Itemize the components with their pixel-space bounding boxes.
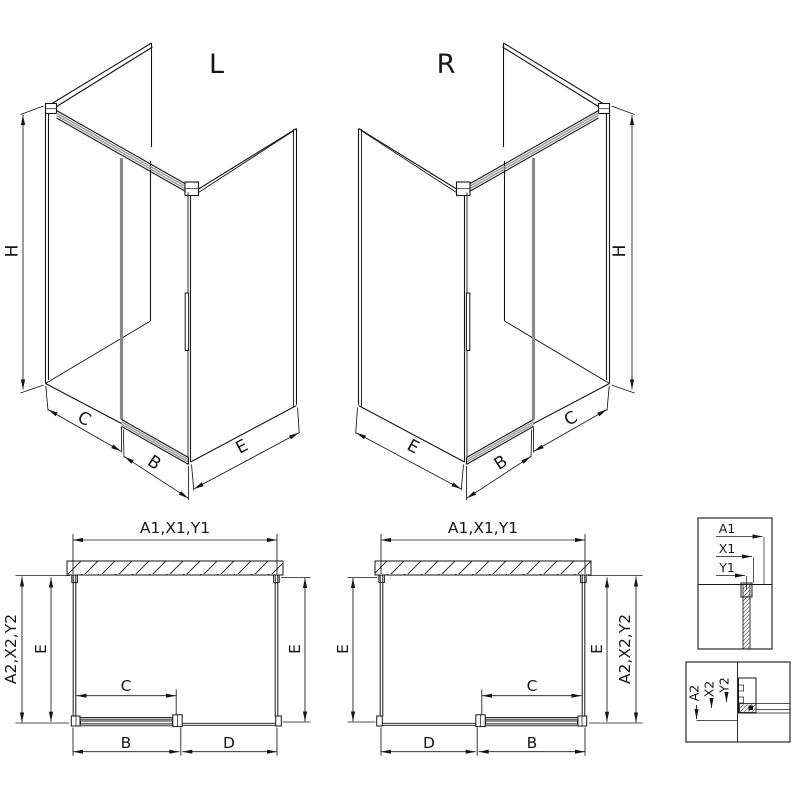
plan-right-dim-side: A2,X2,Y2	[616, 614, 634, 684]
plan-view-right: A1,X1,Y1 A2,X2,Y2 E E C B D	[334, 519, 643, 756]
variant-label-left: L	[209, 49, 224, 80]
plan-view-left: A1,X1,Y1 A2,X2,Y2 E E C B D	[2, 519, 311, 756]
plan-right-dim-e-left: E	[334, 644, 352, 654]
dim-label-height-right: H	[610, 245, 630, 258]
plan-right-dim-b: B	[527, 734, 538, 752]
plan-right-dim-e-right: E	[588, 644, 606, 654]
detail-label-y1: Y1	[718, 560, 735, 575]
dim-label-e-right: E	[404, 436, 423, 459]
plan-left-dim-e-right: E	[286, 644, 304, 654]
wall-profile-detail: A1 X1 Y1	[698, 518, 772, 649]
plan-right-dim-top: A1,X1,Y1	[448, 519, 518, 537]
plan-left-dim-side: A2,X2,Y2	[2, 614, 20, 684]
plan-left-dim-top: A1,X1,Y1	[140, 519, 210, 537]
detail-label-x1: X1	[719, 541, 736, 556]
floor-profile-track	[740, 704, 757, 713]
dim-label-height-left: H	[3, 245, 23, 258]
wall-hatch-right	[375, 561, 591, 575]
iso-view-right: R H C B E	[356, 43, 635, 500]
plan-right-dim-c: C	[527, 677, 538, 695]
shower-enclosure-diagram: L H C B E R H C B E A1,X1,Y1 A2,X2,Y2 E …	[0, 0, 800, 800]
detail-label-a2: A2	[687, 685, 702, 702]
plan-left-dim-c: C	[121, 677, 132, 695]
iso-view-left: L H C B E	[3, 43, 300, 500]
detail-label-x2: X2	[702, 681, 717, 698]
technical-drawing-page: L H C B E R H C B E A1,X1,Y1 A2,X2,Y2 E …	[0, 0, 800, 800]
wall-profile-strip	[743, 585, 750, 650]
floor-profile-detail: A2 X2 Y2	[686, 662, 790, 742]
detail-label-y2: Y2	[717, 677, 732, 694]
plan-left-dim-b: B	[121, 734, 132, 752]
plan-right-dim-d: D	[423, 734, 435, 752]
wall-hatch-left	[67, 561, 283, 575]
variant-label-right: R	[437, 49, 456, 80]
plan-left-dim-d: D	[223, 734, 235, 752]
dim-label-c-right: C	[561, 407, 581, 430]
detail-label-a1: A1	[719, 521, 736, 536]
plan-left-dim-e-left: E	[32, 644, 50, 654]
dim-label-c-left: C	[74, 407, 94, 430]
dim-label-e-left: E	[233, 436, 252, 459]
